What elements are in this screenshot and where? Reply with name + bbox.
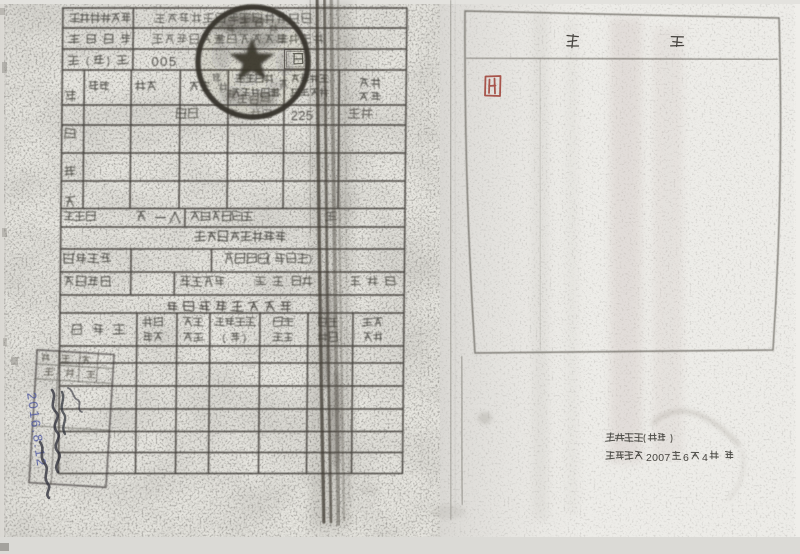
svg-text:2007: 2007 [646,452,671,464]
svg-text:005: 005 [151,54,177,69]
svg-text:6: 6 [683,452,689,464]
svg-text:4: 4 [702,452,708,464]
